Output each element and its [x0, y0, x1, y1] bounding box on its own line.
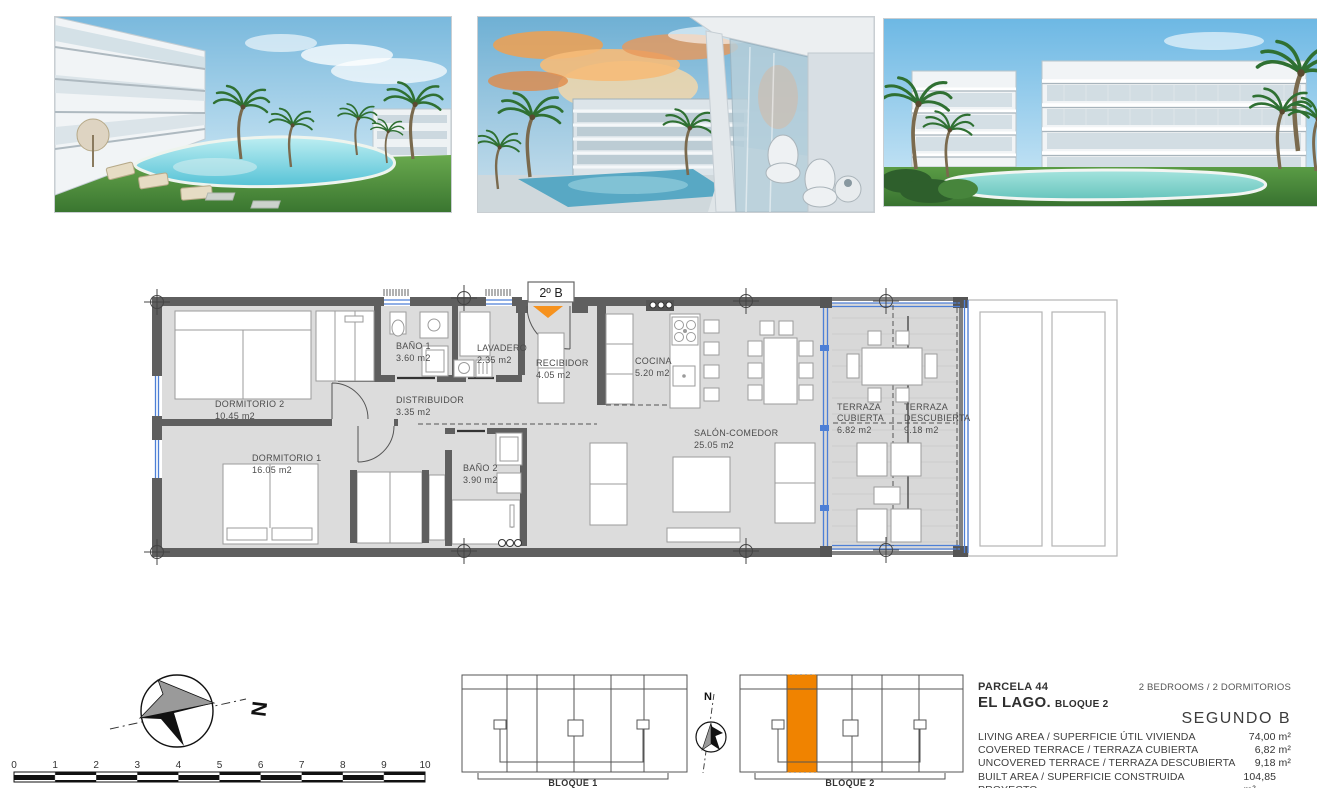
- unit-info-panel: PARCELA 44 2 BEDROOMS / 2 DORMITORIOS EL…: [978, 681, 1291, 788]
- svg-text:3.90 m2: 3.90 m2: [463, 475, 498, 485]
- area-value: 74,00 m²: [1249, 731, 1291, 744]
- svg-text:CUBIERTA: CUBIERTA: [837, 413, 884, 423]
- svg-text:25.05 m2: 25.05 m2: [694, 440, 734, 450]
- room-label-bano-2: BAÑO 2: [463, 463, 498, 473]
- table-row: COVERED TERRACE / TERRAZA CUBIERTA 6,82 …: [978, 744, 1291, 757]
- svg-text:3.35 m2: 3.35 m2: [396, 407, 431, 417]
- svg-text:2.35 m2: 2.35 m2: [477, 355, 512, 365]
- north-compass-small: N: [696, 691, 726, 773]
- area-value: 104,85 m²: [1243, 771, 1291, 788]
- room-label-dormitorio-1: DORMITORIO 1: [252, 453, 321, 463]
- unit-badge-label: 2º B: [539, 286, 562, 300]
- room-label-terraza-cubierta: TERRAZA: [837, 402, 881, 412]
- highlighted-unit: [787, 675, 817, 772]
- project-block: BLOQUE 2: [1055, 699, 1109, 710]
- area-label: LIVING AREA / SUPERFICIE ÚTIL VIVIENDA: [978, 731, 1196, 744]
- room-label-salon-comedor: SALÓN-COMEDOR: [694, 428, 779, 438]
- svg-text:9.18 m2: 9.18 m2: [904, 425, 939, 435]
- svg-text:5.20 m2: 5.20 m2: [635, 368, 670, 378]
- svg-text:5: 5: [217, 760, 223, 771]
- table-row: LIVING AREA / SUPERFICIE ÚTIL VIVIENDA 7…: [978, 731, 1291, 744]
- area-label: COVERED TERRACE / TERRAZA CUBIERTA: [978, 744, 1198, 757]
- svg-text:3: 3: [135, 760, 141, 771]
- bloque-1-label: BLOQUE 1: [548, 778, 597, 788]
- north-letter-main: N: [246, 700, 271, 718]
- room-label-dormitorio-2: DORMITORIO 2: [215, 399, 284, 409]
- bloque-2-label: BLOQUE 2: [825, 778, 874, 788]
- project-name: EL LAGO.: [978, 694, 1051, 711]
- north-compass-main: N: [110, 675, 271, 747]
- svg-text:10.45 m2: 10.45 m2: [215, 411, 255, 421]
- svg-text:3.60 m2: 3.60 m2: [396, 353, 431, 363]
- north-letter-small: N: [704, 691, 712, 703]
- area-value: 9,18 m²: [1255, 757, 1291, 770]
- svg-text:6.82 m2: 6.82 m2: [837, 425, 872, 435]
- table-row: BUILT AREA / SUPERFICIE CONSTRUIDA PROYE…: [978, 771, 1291, 788]
- room-label-terraza-descubierta: TERRAZA: [904, 402, 948, 412]
- svg-text:8: 8: [340, 760, 346, 771]
- floor-plan-sheet: 2º B DORMITORIO 2 10.45 m2 DORMITORIO 1 …: [0, 0, 1317, 788]
- svg-text:1: 1: [52, 760, 58, 771]
- room-label-cocina: COCINA: [635, 356, 672, 366]
- svg-text:DESCUBIERTA: DESCUBIERTA: [904, 413, 970, 423]
- svg-text:6: 6: [258, 760, 264, 771]
- room-label-bano-1: BAÑO 1: [396, 341, 431, 351]
- bloque-1-diagram: [462, 675, 687, 779]
- svg-text:16.05 m2: 16.05 m2: [252, 465, 292, 475]
- svg-text:0: 0: [11, 760, 17, 771]
- neighbour-unit-outline: [968, 300, 1117, 556]
- table-row: UNCOVERED TERRACE / TERRAZA DESCUBIERTA …: [978, 757, 1291, 770]
- unit-name: SEGUNDO B: [978, 710, 1291, 728]
- area-label: UNCOVERED TERRACE / TERRAZA DESCUBIERTA: [978, 757, 1236, 770]
- parcel-label: PARCELA 44: [978, 681, 1048, 693]
- area-table: LIVING AREA / SUPERFICIE ÚTIL VIVIENDA 7…: [978, 731, 1291, 788]
- bloque-2-diagram: [740, 675, 963, 779]
- svg-text:4.05 m2: 4.05 m2: [536, 370, 571, 380]
- bedrooms-label: 2 BEDROOMS / 2 DORMITORIOS: [1139, 682, 1291, 693]
- room-label-recibidor: RECIBIDOR: [536, 358, 589, 368]
- svg-text:10: 10: [419, 760, 431, 771]
- area-value: 6,82 m²: [1255, 744, 1291, 757]
- svg-text:2: 2: [93, 760, 99, 771]
- room-label-distribuidor: DISTRIBUIDOR: [396, 395, 464, 405]
- scale-bar: 0 1 2 3 4 5 6 7 8 9 10: [11, 760, 431, 782]
- floorplan-brochure-page: 2º B DORMITORIO 2 10.45 m2 DORMITORIO 1 …: [0, 0, 1317, 788]
- svg-text:4: 4: [176, 760, 182, 771]
- area-label: BUILT AREA / SUPERFICIE CONSTRUIDA PROYE…: [978, 771, 1243, 788]
- svg-text:7: 7: [299, 760, 305, 771]
- room-label-lavadero: LAVADERO: [477, 343, 527, 353]
- svg-text:9: 9: [381, 760, 387, 771]
